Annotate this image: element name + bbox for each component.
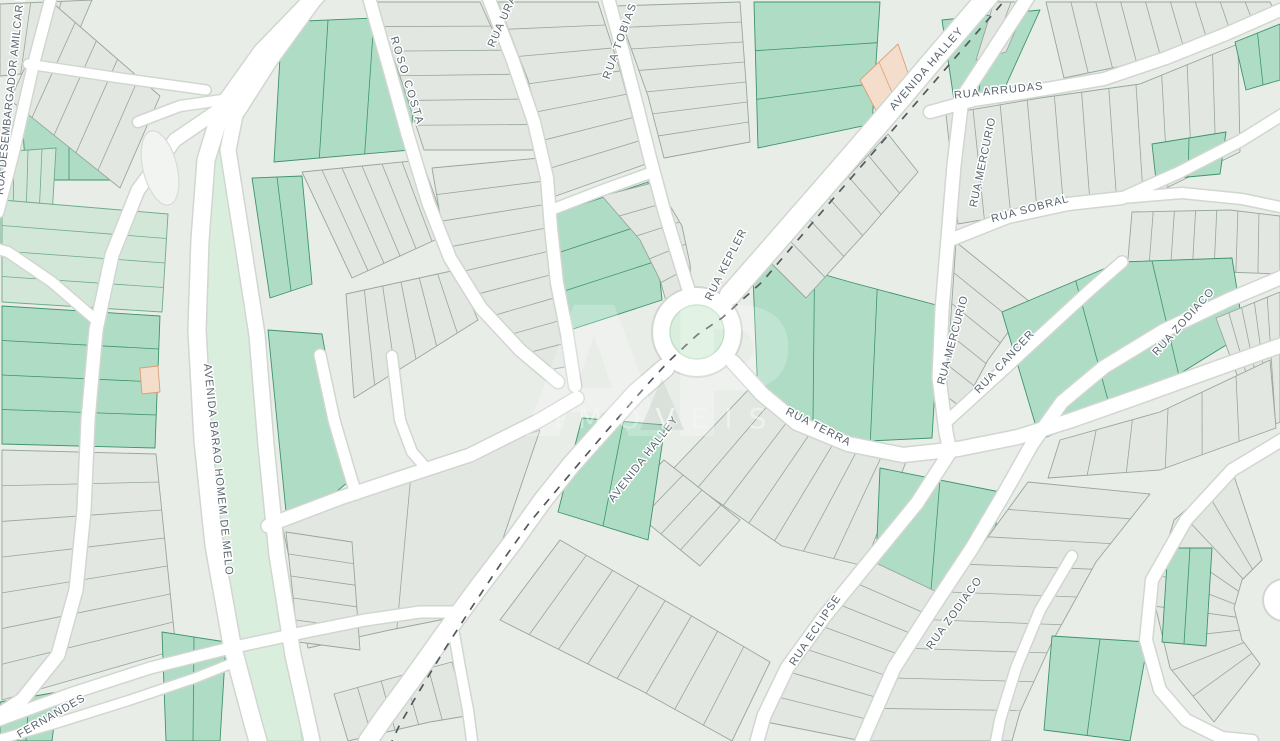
map-canvas[interactable]: RUA DESEMBARGADOR AMILCAR DEROSO COSTARU…	[0, 0, 1280, 741]
watermark-logo: AP	[524, 270, 795, 479]
watermark-word: IMÓVEIS	[554, 401, 783, 435]
watermark: AP IMÓVEIS	[524, 270, 795, 479]
parcel-block	[2, 200, 168, 312]
parcel-block	[754, 2, 880, 148]
parcel-block	[1044, 636, 1148, 741]
map-viewport[interactable]: RUA DESEMBARGADOR AMILCAR DEROSO COSTARU…	[0, 0, 1280, 741]
parcel-block	[140, 366, 160, 394]
